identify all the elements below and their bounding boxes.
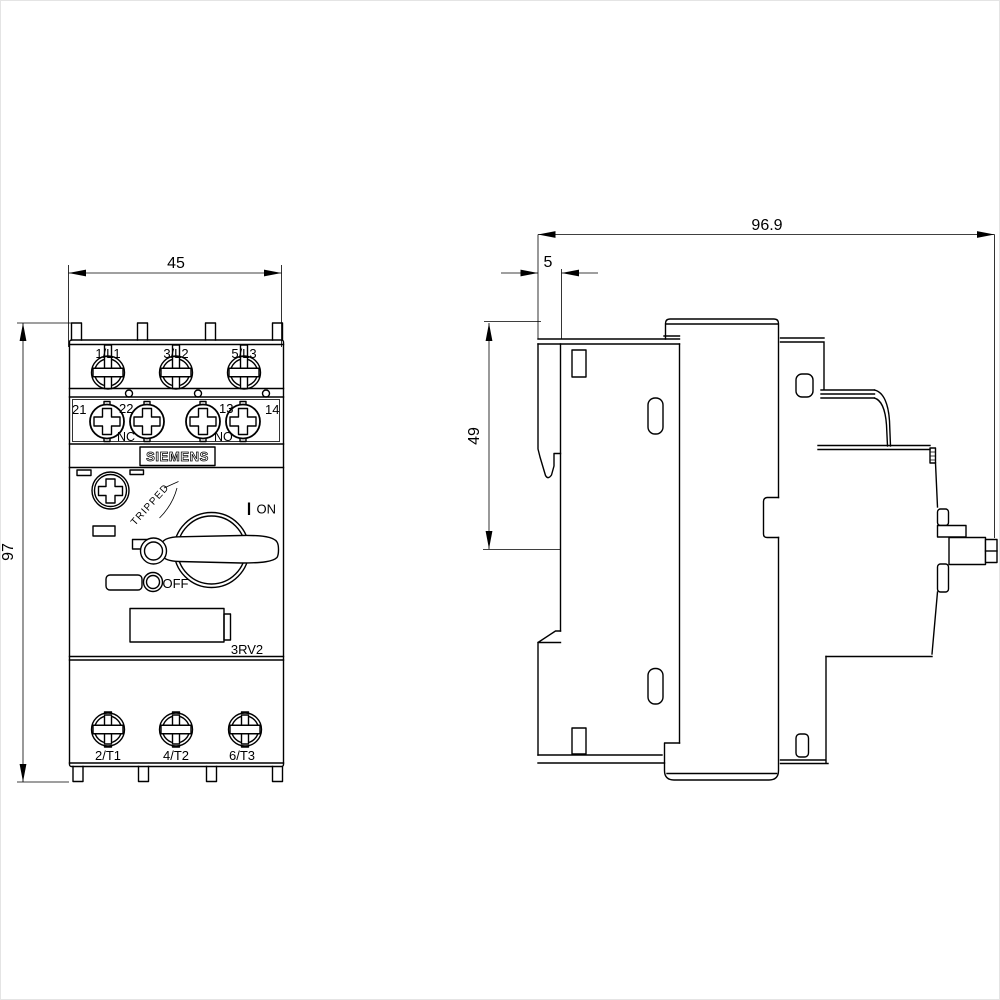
front-width-label: 45 — [167, 255, 185, 272]
screw-terminal-icon — [92, 712, 125, 747]
screw-terminal-icon — [160, 712, 193, 747]
no-contact-label: NO — [214, 430, 233, 444]
on-label: ON — [257, 502, 277, 517]
off-label: OFF — [163, 576, 189, 591]
nc-contact-label: NC — [117, 430, 135, 444]
terminal-label: 1/L1 — [95, 346, 120, 361]
switch-section: TRIPPED ON OFF 3RV2 — [77, 470, 279, 657]
adjustment-dial-icon — [92, 472, 129, 509]
knob-handle — [162, 535, 279, 563]
din-rail-clip — [538, 344, 561, 478]
nameplate — [130, 609, 224, 643]
handle-height-label: 49 — [466, 427, 483, 445]
product-code-label: 3RV2 — [231, 642, 263, 657]
terminal-label: 4/T2 — [163, 748, 189, 763]
clip-depth-dimension: 5 — [501, 254, 598, 339]
side-depth-label: 96.9 — [751, 217, 782, 234]
dimension-drawing-page: 45 97 — [0, 0, 1000, 1000]
tripped-label: TRIPPED — [129, 482, 172, 528]
screw-terminal-icon — [229, 712, 262, 747]
front-view: 45 97 — [1, 255, 284, 782]
front-height-label: 97 — [1, 543, 17, 561]
side-middle-housing — [664, 319, 779, 780]
line-terminal-screws: 1/L1 3/L2 5/L3 — [92, 345, 261, 389]
terminal-label: 2/T1 — [95, 748, 121, 763]
top-mounting-tabs — [72, 323, 283, 340]
housing-notch — [764, 498, 779, 538]
knob-shaft — [949, 538, 986, 565]
aux-contact-screws: 21 22 13 14 NC NO — [72, 401, 279, 444]
aux-terminal-label: 22 — [119, 401, 133, 416]
dimension-drawing: 45 97 — [1, 1, 999, 999]
brand-plate: SIEMENS — [140, 447, 215, 466]
bottom-mounting-tabs — [73, 767, 283, 782]
clip-depth-label: 5 — [544, 254, 553, 271]
handle-height-dimension: 49 — [466, 322, 561, 550]
aux-terminal-label: 21 — [72, 402, 86, 417]
terminal-label: 5/L3 — [231, 346, 256, 361]
terminal-label: 6/T3 — [229, 748, 255, 763]
side-depth-dimension: 96.9 — [538, 217, 995, 538]
aux-terminal-label: 14 — [265, 402, 279, 417]
side-knob-handle — [938, 509, 998, 592]
front-width-dimension: 45 — [69, 255, 282, 347]
front-height-dimension: 97 — [1, 323, 71, 782]
side-front-section — [781, 338, 998, 764]
aux-terminal-label: 13 — [219, 401, 233, 416]
screw-cross-icon — [130, 402, 164, 442]
brand-label: SIEMENS — [146, 449, 209, 464]
front-bezel — [818, 446, 930, 450]
side-view: 96.9 5 49 — [466, 217, 997, 780]
load-terminal-screws: 2/T1 4/T2 6/T3 — [92, 712, 262, 763]
terminal-label: 3/L2 — [163, 346, 188, 361]
side-rear-body — [538, 339, 680, 763]
